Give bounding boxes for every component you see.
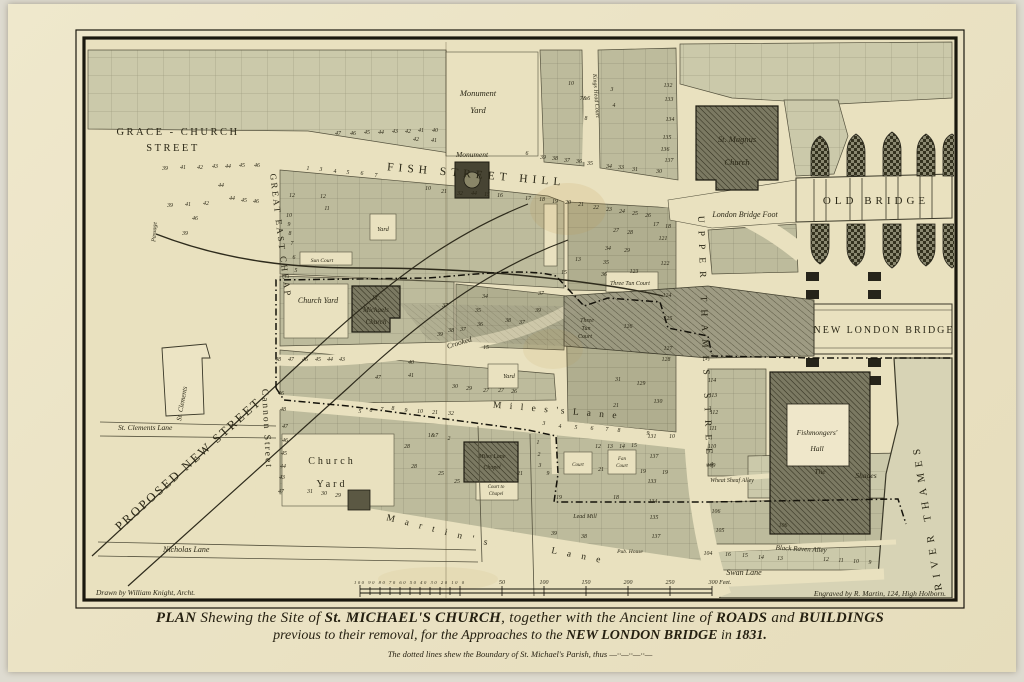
parcel-number: 137 [652,534,662,540]
title-segment: in [717,628,735,643]
map-label-the-shades-word2: Shades [855,471,876,480]
parcel-number: 2 [448,436,451,442]
map-label-st-magnus-church-line1: St. Magnus [718,134,757,144]
parcel-number: 132 [664,83,673,89]
map-title-line2: previous to their removal, for the Appro… [8,628,1024,644]
parcel-number: 10 [417,409,423,415]
scale-label: 300 Feet. [708,580,732,586]
parcel-number: 123 [630,269,639,275]
parcel-number: 6 [526,151,529,157]
parcel-number: 14 [619,443,625,450]
parcel-number: 30 [451,384,458,390]
parcel-number: 10 [286,213,292,219]
parcel-number: 13 [575,257,581,263]
parcel-number: 21 [432,410,438,416]
parcel-number: 135 [663,135,672,141]
parcel-number: 43 [392,128,398,135]
parcel-number: 34 [605,163,612,170]
map-label-new-london-bridge: NEW LONDON BRIDGE [813,325,954,336]
map-label-yard-crooked: Yard [503,373,516,380]
parcel-number: 6 [361,171,364,177]
parcel-number: 10 [425,186,431,192]
parcel-number: 26 [645,213,651,219]
parcel-number: 8 [289,231,292,237]
parcel-number: 37 [518,320,526,326]
parcel-number: 46 [278,390,284,397]
parcel-number: 39 [166,203,173,209]
st-clements-church-building [162,344,210,416]
parcel-number: 34 [604,245,611,252]
parcel-number: 36 [476,322,483,328]
parcel-number: 41 [418,127,424,134]
parcel-number: 3 [538,463,542,469]
map-label-fan-court-line1: Fan [617,457,627,462]
parcel-number: 38 [504,318,511,324]
parcel-number: 1&7 [428,433,439,439]
parcel-number: 37 [441,303,449,309]
map-label-nicholas-lane: Nicholas Lane [162,545,210,554]
parcel-number: 12 [320,194,326,200]
parcel-number: 42 [405,128,411,135]
title-segment: PLAN [156,610,200,626]
map-title-note: The dotted lines shew the Boundary of St… [8,649,1024,659]
title-segment: , together with the Ancient line of [501,610,716,626]
parcel-number: 24 [619,208,625,215]
map-label-church-yard-lower-line1: Church [308,456,355,467]
alley-miles [553,416,555,474]
map-label-monument-yard-line1: Monument [459,88,497,98]
parcel-number: 128 [662,357,671,363]
parcel-number: 46 [192,215,198,222]
map-label-st-michaels-church-line2: Michaels [362,306,389,314]
parcel-number: 2 [538,452,541,458]
note-text: The dotted lines shew the Boundary of St… [388,649,608,659]
parcel-number: 46 [302,356,308,363]
parcel-number: 4 [613,102,616,109]
parcel-number: 40 [408,359,414,366]
street-kings-head-court [586,52,589,162]
parcel-number: 12 [823,557,829,563]
map-label-london-bridge-foot: London Bridge Foot [711,210,778,219]
parcel-number: 134 [649,498,658,505]
parcel-number: 15 [484,192,490,198]
title-segment: NEW LONDON BRIDGE [566,628,717,643]
parcel-number: 31 [631,167,638,173]
approach-swath [564,286,814,358]
parcel-number: 42 [413,136,419,143]
map-label-fishmongers-hall-line1: Fishmongers' [796,428,838,437]
parcel-number: 41 [185,201,191,208]
parcel-number: 31 [614,377,621,383]
parcel-number: 44 [471,190,477,197]
parcel-number: 15 [561,270,567,276]
parcel-number: 105 [716,528,725,534]
map-label-pub-house: Pub. House [616,549,643,555]
parcel-number: 135 [650,515,659,521]
parcel-number: 43 [212,163,218,170]
title-segment: BUILDINGS [799,610,884,626]
parcel-number: 33 [617,165,624,171]
parcel-number: 29 [335,493,341,499]
parcel-number: 41 [431,137,437,144]
parcel-number: 48 [275,356,281,363]
parcel-number: 129 [637,381,646,387]
parcel-number: 15 [631,443,637,449]
parcel-number: 19 [640,469,646,475]
parcel-number: 39 [534,308,541,314]
parcel-number: 46 [282,437,288,444]
parcel-number: 21 [598,467,604,473]
parcel-number: 44 [280,463,286,470]
parcel-number: 121 [659,236,668,242]
parcel-number: 26 [511,389,517,395]
parcel-number: 15 [742,553,748,559]
parcel-number: 11 [838,558,843,564]
parcel-number: 13 [607,444,613,450]
parcel-number: 136 [661,147,670,153]
parcel-number: 43 [279,474,285,481]
parcel-number: 12 [595,444,601,450]
parcel-number: 19 [556,495,562,501]
parcel-number: 131 [648,434,657,440]
parcel-number: 43 [339,356,345,363]
parcel-number: 35 [602,260,609,266]
title-segment: and [767,610,799,626]
parcel-number: 38 [580,534,587,540]
map-label-fishmongers-hall-line2: Hall [809,444,823,453]
map-label-monument-yard-line2: Yard [470,105,486,115]
parcel-number: 44 [229,195,235,202]
map-label-yard-upper: Yard [377,226,390,233]
parcel-number: 10 [568,81,574,87]
map-label-church-yard-upper: Church Yard [298,296,339,305]
parcel-number: 13 [777,556,783,562]
miles-lane-chapel-building [464,442,518,482]
scale-label: 250 [666,580,675,586]
map-label-swan-lane: Swan Lane [726,568,762,577]
parcel-number: 3 [319,167,323,173]
map-label-three-tun-court2-line2: Tun [581,326,590,332]
parcel-number: 137 [650,454,660,460]
parcel-number: 41 [408,372,414,379]
parcel-number: 31 [306,489,313,495]
parcel-number: 44 [225,163,231,170]
parcel-number: 37 [537,291,545,297]
map-label-miles-lane-chapel-line2: Chapel [483,465,501,471]
parcel-number: 106 [779,523,788,529]
parcel-number: 30 [655,169,662,175]
parcel-number: 34 [481,293,488,300]
parcel-number: 44 [327,356,333,363]
parcel-number: 8 [392,406,395,412]
parcel-number: 16 [725,552,731,558]
parcel-number: 37 [563,158,571,164]
map-label-three-tun-court: Three Tun Court [610,281,650,287]
map-title-line1: PLAN Shewing the Site of St. MICHAEL'S C… [8,610,1024,627]
parcel-number: 5 [295,268,298,274]
parcel-number: 38 [447,328,454,334]
parcel-number: 45 [281,450,287,457]
map-title: PLAN Shewing the Site of St. MICHAEL'S C… [8,610,1024,659]
parcel-number: 133 [665,97,674,103]
parcel-number: 36 [575,159,582,165]
map-label-court-miles: Court [572,463,584,468]
parcel-number: 25 [438,471,444,477]
parcel-number: 19 [662,470,668,476]
parcel-number: 7&6 [580,96,590,102]
parcel-number: 21 [441,189,447,195]
parcel-number: 19 [552,199,558,205]
parcel-number: 137 [665,158,675,164]
parcel-number: 45 [364,129,370,136]
parcel-number: 1 [537,440,540,446]
note-dash-sample: —··—··—··— [609,649,652,659]
map-label-three-tun-court2-line1: Three [580,318,594,324]
parcel-number: 6 [370,408,373,414]
parcel-number: 36 [600,272,607,278]
parcel-number: 14 [758,554,764,561]
parcel-number: 29 [466,386,472,392]
parcel-number: 5 [359,409,362,415]
fan-court-area [608,450,636,474]
parcel-number: 37 [459,327,467,333]
parcel-number: 21 [613,403,619,409]
parcel-number: 16 [497,193,503,199]
parcel-number: 18 [539,197,545,203]
parcel-number: 9 [547,471,550,477]
parcel-number: 11 [324,206,329,212]
map-label-church-yard-lower-line2: Yard [317,479,348,490]
parcel-number: 9 [869,560,872,566]
parcel-number: 9 [405,408,408,414]
parcel-number: 23 [606,207,612,213]
title-segment: previous to their removal, for the Appro… [273,628,566,643]
parcel-number: 4 [334,168,337,175]
parcel-number: 45 [315,356,321,363]
map-label-fan-court-line2: Court [616,464,628,469]
parcel-number: 12 [289,193,295,199]
fishmongers-hall-building [770,372,870,534]
scale-label: 200 [624,580,633,586]
parcel-number: 39 [161,166,168,172]
parcel-number: 3 [610,87,614,93]
parcel-number: 18 [665,224,671,230]
monument-yard [446,52,538,156]
map-label-court-to-chapel-line1: Court to [488,485,505,490]
parcel-number: 38 [551,156,558,162]
map-label-three-tun-court2-line3: Court [578,334,592,340]
parcel-number: 41 [180,164,186,171]
parcel-number: 1 [307,166,310,172]
parcel-number: 4 [559,423,562,430]
map-label-st-michaels-church-line1: St. [372,294,379,302]
map-label-court-to-chapel-line2: Chapel [489,492,504,497]
parcel-number: 106 [712,509,721,515]
dark-building-small [348,490,370,510]
parcel-number: 48 [280,406,286,413]
parcel-number: 25 [632,211,638,217]
parcel-number: 126 [624,324,633,330]
parcel-number: 10 [669,434,675,440]
parcel-number: 46 [253,198,259,205]
title-segment: ROADS [716,610,768,626]
parcel-number: 42 [203,200,209,207]
parcel-number: 39 [436,332,443,338]
map-label-drawn-by-credit: Drawn by William Knight, Archt. [95,588,195,597]
court-to-chapel-area [476,480,518,500]
parcel-number: 39 [550,531,557,537]
parcel-number: 6 [293,255,296,261]
map-label-the-shades-word1: The [814,467,826,476]
map-label-old-bridge: OLD BRIDGE [823,195,929,207]
map-label-grace-church-street-line2: STREET [146,143,200,154]
map-label-st-michaels-church-line3: Church [366,318,387,326]
map-label-sun-court: Sun Court [311,258,334,264]
scale-label: 100 [540,580,549,586]
map-label-st-magnus-church-line2: Church [724,157,749,167]
parcel-number: 104 [704,550,713,557]
parcel-number: 122 [661,261,670,267]
parcel-number: 8 [585,116,588,122]
st-magnus-church-building [696,106,778,190]
map-label-miles-lane-chapel-line1: Miles Lane [478,454,506,460]
parcel-number: 21 [517,471,523,477]
parcel-number: 22 [593,205,599,211]
map-label-wheat-sheaf-alley: Wheat Sheaf Alley [710,477,754,484]
parcel-number: 44 [378,129,384,136]
parcel-number: 9 [288,222,291,228]
title-segment: St. MICHAEL'S CHURCH [325,610,501,626]
parcel-number: 124 [663,292,672,299]
map-label-lead-mill: Lead Mill [572,514,597,520]
parcel-number: 40 [432,127,438,134]
parcel-number: 125 [664,316,673,322]
parcel-number: 133 [648,479,657,485]
map-sheet: 100 90 80 70 60 50 40 30 20 10 0 5010015… [8,4,1016,672]
parcel-number: 42 [197,164,203,171]
title-segment: Shewing the Site of [200,610,324,626]
parcel-number: 18 [613,495,619,501]
map-label-engraved-by-credit: Engraved by R. Martin, 124, High Holborn… [813,589,946,598]
parcel-number: 15 [483,345,489,351]
parcel-number: 8 [618,428,621,434]
parcel-number: 44 [218,182,224,189]
parcel-number: 30 [320,491,327,497]
parcel-number: 45 [239,162,245,169]
parcel-number: 5 [575,425,578,431]
parcel-number: 45 [241,197,247,204]
parcel-number: 28 [404,444,410,450]
parcel-number: 25 [454,479,460,485]
parcel-number: 35 [474,308,481,314]
parcel-number: 10 [853,559,859,565]
parcel-number: 29 [624,248,630,254]
map-label-grace-church-street-line1: GRACE - CHURCH [116,127,239,138]
scale-label: 50 [499,580,505,586]
parcel-number: 20 [565,200,571,206]
parcel-number: 6 [591,426,594,432]
parcel-number: 35 [586,161,593,167]
parcel-number: 39 [539,155,546,161]
parcel-number: 39 [181,231,188,237]
parcel-number: 46 [350,130,356,137]
title-segment: 1831. [735,628,767,643]
scale-label: 150 [582,580,591,586]
parcel-number: 46 [254,162,260,169]
parcel-number: 32 [456,191,463,197]
parcel-number: 28 [627,230,633,236]
church-yard-upper-area [284,284,348,338]
parcel-number: 5 [347,170,350,176]
parcel-number: 127 [664,346,674,352]
map-canvas: 100 90 80 70 60 50 40 30 20 10 0 5010015… [8,4,1024,682]
parcel-number: 130 [654,399,663,405]
parcel-number: 28 [411,464,417,470]
map-label-st-clements-lane: St. Clements Lane [118,423,173,432]
map-label-monument: Monument [455,150,489,159]
parcel-number: 21 [578,202,584,208]
parcel-number: 32 [447,411,454,417]
parcel-number: 3 [542,421,546,427]
parcel-number: 134 [666,116,675,123]
